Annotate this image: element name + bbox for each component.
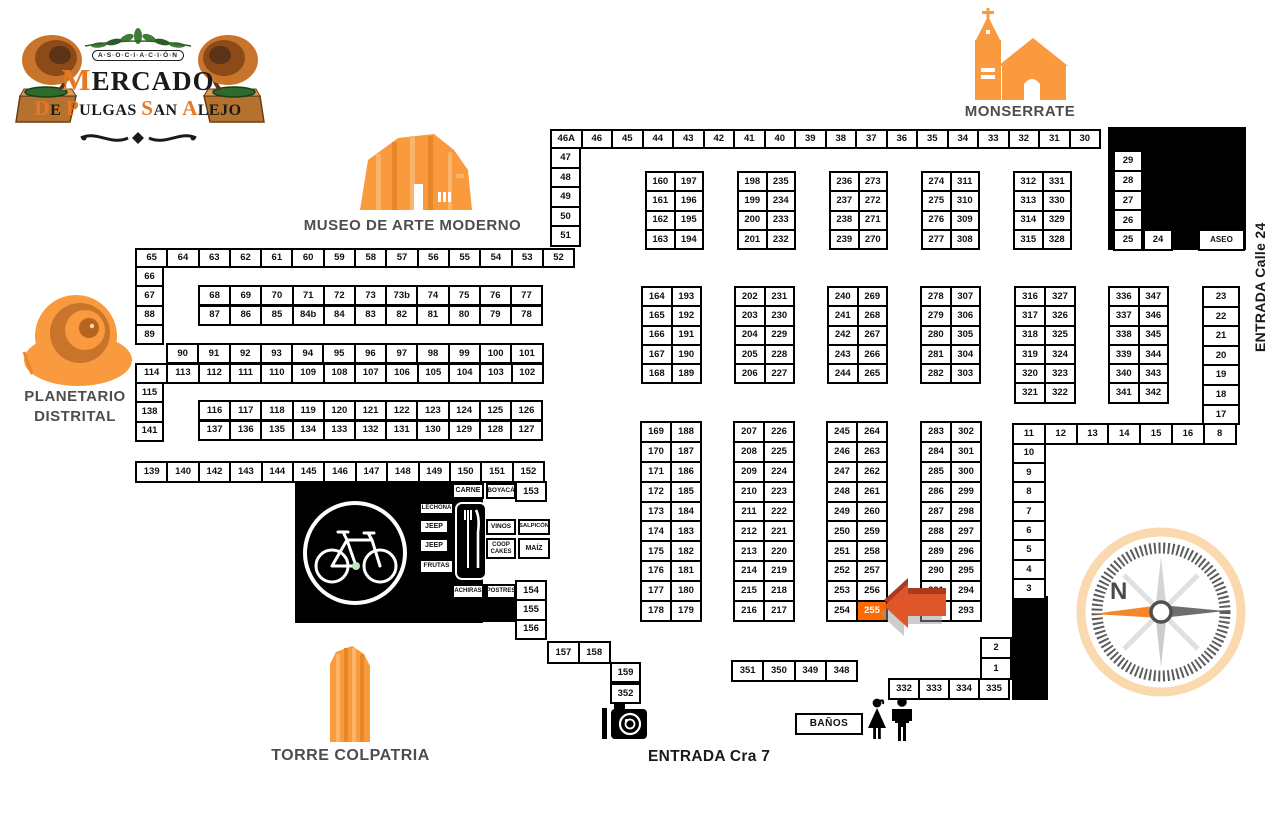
- stall-281: 281: [922, 346, 950, 363]
- stall-314: 314: [1015, 212, 1042, 229]
- stall-66: 66: [137, 268, 162, 285]
- stall-126: 126: [512, 402, 541, 419]
- man-restroom-icon: [890, 697, 914, 743]
- stall-308: 308: [952, 231, 979, 248]
- stall-305: 305: [952, 327, 980, 344]
- stall-341: 341: [1110, 384, 1138, 401]
- stall-7: 7: [1014, 503, 1044, 520]
- stall-169: 169: [642, 423, 670, 441]
- stall-50: 50: [552, 208, 579, 226]
- stall-16: 16: [1173, 425, 1203, 443]
- stall-174: 174: [642, 522, 670, 540]
- cell-159: 159: [610, 662, 641, 684]
- stall-339: 339: [1110, 346, 1138, 363]
- stall-227: 227: [766, 365, 794, 382]
- stall-39: 39: [796, 131, 825, 147]
- fork-knife-icon: [457, 504, 485, 578]
- stall-145: 145: [294, 463, 323, 481]
- block-164-189: 164193165192166191167190168189: [641, 286, 702, 384]
- stall-293: 293: [952, 602, 980, 620]
- col-66-89: 66678889: [135, 266, 164, 345]
- stall-351: 351: [733, 662, 762, 680]
- stall-153: 153: [517, 483, 545, 500]
- stall-215: 215: [735, 582, 763, 600]
- stall-57: 57: [387, 250, 416, 266]
- stall-213: 213: [735, 542, 763, 560]
- stall-326: 326: [1046, 307, 1074, 324]
- stall-236: 236: [831, 173, 858, 190]
- stall-277: 277: [923, 231, 950, 248]
- stall-17: 17: [1204, 406, 1238, 424]
- stall-84: 84: [325, 307, 354, 324]
- cell-153: 153: [515, 481, 547, 502]
- stall-104: 104: [450, 365, 479, 382]
- block-274-308: 274311275310276309277308: [921, 171, 980, 250]
- stall-88: 88: [137, 307, 162, 324]
- stall-262: 262: [858, 463, 886, 481]
- stall-23: 23: [1204, 288, 1238, 306]
- stall-346: 346: [1140, 307, 1168, 324]
- block-278-303: 278307279306280305281304282303: [920, 286, 981, 384]
- stall-316: 316: [1016, 288, 1044, 305]
- stall-338: 338: [1110, 327, 1138, 344]
- stall-30: 30: [1071, 131, 1100, 147]
- stall-78: 78: [512, 307, 541, 324]
- stall-35: 35: [918, 131, 947, 147]
- stall-140: 140: [168, 463, 197, 481]
- stall-74: 74: [418, 287, 447, 304]
- stall-44: 44: [644, 131, 673, 147]
- stall-75: 75: [450, 287, 479, 304]
- col-47-51: 4748495051: [550, 147, 581, 247]
- stall-197: 197: [676, 173, 703, 190]
- stall-315: 315: [1015, 231, 1042, 248]
- stall-331: 331: [1044, 173, 1071, 190]
- stall-132: 132: [356, 422, 385, 439]
- stall-335: 335: [980, 680, 1008, 699]
- stall-43: 43: [674, 131, 703, 147]
- food-label-salpic-n: SALPICÓN: [518, 519, 550, 535]
- row-116-126: 116117118119120121122123124125126: [198, 400, 543, 421]
- stall-216: 216: [735, 602, 763, 620]
- highlight-arrow-icon: [880, 574, 956, 636]
- stall-311: 311: [952, 173, 979, 190]
- stall-115: 115: [137, 384, 162, 401]
- stall-62: 62: [231, 250, 260, 266]
- block-207-217: 2072262082252092242102232112222122212132…: [733, 421, 795, 622]
- stall-37: 37: [857, 131, 886, 147]
- stall-205: 205: [736, 346, 764, 363]
- stall-49: 49: [552, 188, 579, 206]
- col-154-156: 154155156: [515, 580, 547, 640]
- stall-96: 96: [356, 345, 385, 362]
- stall-8: 8: [1014, 483, 1044, 500]
- food-label-achiras: ACHIRAS: [452, 584, 484, 599]
- food-label-jeep: JEEP: [419, 519, 449, 534]
- stall-222: 222: [765, 503, 793, 521]
- stall-170: 170: [642, 443, 670, 461]
- stall-309: 309: [952, 212, 979, 229]
- stall-303: 303: [952, 365, 980, 382]
- food-label-lechona: LECHONA: [419, 502, 454, 515]
- stall-237: 237: [831, 192, 858, 209]
- stall-175: 175: [642, 542, 670, 560]
- stall-92: 92: [231, 345, 260, 362]
- stall-15: 15: [1141, 425, 1171, 443]
- stall-202: 202: [736, 288, 764, 305]
- stall-152: 152: [514, 463, 543, 481]
- col-29-25: 2928272625: [1113, 150, 1143, 251]
- stall-207: 207: [735, 423, 763, 441]
- stall-65: 65: [137, 250, 166, 266]
- stall-146: 146: [325, 463, 354, 481]
- food-label-jeep: JEEP: [419, 538, 449, 553]
- stall-136: 136: [231, 422, 260, 439]
- block-245-255: 2452642462632472622482612492602502592512…: [826, 421, 888, 622]
- stall-264: 264: [858, 423, 886, 441]
- stall-188: 188: [672, 423, 700, 441]
- food-label-coop-cakes: COOP CAKES: [486, 538, 516, 559]
- stall-178: 178: [642, 602, 670, 620]
- stall-87: 87: [200, 307, 229, 324]
- stall-54: 54: [481, 250, 510, 266]
- food-label-postres: POSTRES: [486, 584, 516, 599]
- stall-121: 121: [356, 402, 385, 419]
- row-90-101: 90919293949596979899100101: [166, 343, 544, 364]
- stall-102: 102: [513, 365, 542, 382]
- stall-68: 68: [200, 287, 229, 304]
- stall-48: 48: [552, 169, 579, 187]
- stall-192: 192: [673, 307, 701, 324]
- laurel-icon: [83, 28, 193, 50]
- stall-120: 120: [325, 402, 354, 419]
- stall-320: 320: [1016, 365, 1044, 382]
- stall-249: 249: [828, 503, 856, 521]
- stall-235: 235: [768, 173, 795, 190]
- stall-1: 1: [982, 659, 1010, 677]
- stall-8: 8: [1205, 425, 1235, 443]
- stall-337: 337: [1110, 307, 1138, 324]
- stall-84b: 84b: [294, 307, 323, 324]
- stall-246: 246: [828, 443, 856, 461]
- stall-86: 86: [231, 307, 260, 324]
- stall-312: 312: [1015, 173, 1042, 190]
- stall-239: 239: [831, 231, 858, 248]
- stall-168: 168: [643, 365, 671, 382]
- block-160-194: 160197161196162195163194: [645, 171, 704, 250]
- stall-29: 29: [1115, 152, 1141, 170]
- stall-116: 116: [200, 402, 229, 419]
- black-zone-bottom-right: [1012, 596, 1048, 700]
- stall-27: 27: [1115, 192, 1141, 210]
- block-240-265: 240269241268242267243266244265: [827, 286, 888, 384]
- food-label-boyac-: BOYACÁ: [486, 483, 516, 499]
- stall-93: 93: [262, 345, 291, 362]
- svg-text:N: N: [1110, 578, 1127, 605]
- stall-189: 189: [673, 365, 701, 382]
- stall-18: 18: [1204, 386, 1238, 404]
- stall-274: 274: [923, 173, 950, 190]
- block-316-322: 316327317326318325319324320323321322: [1014, 286, 1076, 404]
- stall-231: 231: [766, 288, 794, 305]
- stall-248: 248: [828, 483, 856, 501]
- stall-317: 317: [1016, 307, 1044, 324]
- stall-208: 208: [735, 443, 763, 461]
- stall-347: 347: [1140, 288, 1168, 305]
- stall-218: 218: [765, 582, 793, 600]
- block-336-342: 336347337346338345339344340343341342: [1108, 286, 1169, 404]
- stall-98: 98: [418, 345, 447, 362]
- stall-82: 82: [387, 307, 416, 324]
- food-label-ma-z: MAÍZ: [518, 538, 550, 559]
- stall-142: 142: [200, 463, 229, 481]
- stall-199: 199: [739, 192, 766, 209]
- stall-344: 344: [1140, 346, 1168, 363]
- logo-subtitle: DE PULGAS SAN ALEJO: [8, 96, 268, 121]
- stall-55: 55: [450, 250, 479, 266]
- stall-47: 47: [552, 149, 579, 167]
- stall-111: 111: [231, 365, 260, 382]
- stall-266: 266: [859, 346, 887, 363]
- stall-243: 243: [829, 346, 857, 363]
- stall-209: 209: [735, 463, 763, 481]
- logo-asociacion: A·S·O·C·I·A·C·I·Ó·N: [92, 50, 184, 61]
- food-label-vinos: VINOS: [486, 519, 516, 535]
- stall-177: 177: [642, 582, 670, 600]
- block-169-179: 1691881701871711861721851731841741831751…: [640, 421, 702, 622]
- stall-6: 6: [1014, 522, 1044, 539]
- stall-181: 181: [672, 562, 700, 580]
- stall-270: 270: [860, 231, 887, 248]
- stall-228: 228: [766, 346, 794, 363]
- stall-139: 139: [137, 463, 166, 481]
- row-65-52: 6564636261605958575655545352: [135, 248, 575, 268]
- stall-107: 107: [356, 365, 385, 382]
- banos-box: BAÑOS: [795, 713, 863, 735]
- stall-343: 343: [1140, 365, 1168, 382]
- stall-288: 288: [922, 522, 950, 540]
- stall-109: 109: [293, 365, 322, 382]
- stall-94: 94: [293, 345, 322, 362]
- stall-34: 34: [949, 131, 978, 147]
- logo: A·S·O·C·I·A·C·I·Ó·N MERCADO DE PULGAS SA…: [8, 10, 268, 160]
- stall-330: 330: [1044, 192, 1071, 209]
- planetario-label-line2: DISTRITAL: [5, 408, 145, 425]
- stall-40: 40: [766, 131, 795, 147]
- stall-271: 271: [860, 212, 887, 229]
- col-115-141: 115138141: [135, 382, 164, 442]
- row-68-77: 68697071727373b74757677: [198, 285, 543, 306]
- stall-5: 5: [1014, 541, 1044, 558]
- stall-20: 20: [1204, 347, 1238, 365]
- row-114-102: 114113112111110109108107106105104103102: [135, 363, 544, 384]
- stall-258: 258: [858, 542, 886, 560]
- stall-247: 247: [828, 463, 856, 481]
- stall-134: 134: [294, 422, 323, 439]
- stall-141: 141: [137, 423, 162, 440]
- compass-icon: N: [1072, 523, 1250, 701]
- stall-85: 85: [262, 307, 291, 324]
- stall-11: 11: [1014, 425, 1044, 443]
- stall-3: 3: [1014, 580, 1044, 597]
- stall-297: 297: [952, 522, 980, 540]
- stall-334: 334: [950, 680, 978, 699]
- stall-211: 211: [735, 503, 763, 521]
- row-11-8: 1112131415168: [1012, 423, 1237, 445]
- stall-278: 278: [922, 288, 950, 305]
- stall-114: 114: [137, 365, 166, 382]
- monserrate-label: MONSERRATE: [945, 103, 1095, 120]
- stall-77: 77: [512, 287, 541, 304]
- stall-38: 38: [827, 131, 856, 147]
- stall-119: 119: [294, 402, 323, 419]
- stall-4: 4: [1014, 561, 1044, 578]
- stall-206: 206: [736, 365, 764, 382]
- stall-155: 155: [517, 601, 545, 618]
- stall-261: 261: [858, 483, 886, 501]
- stall-113: 113: [168, 365, 197, 382]
- torre-colpatria-label: TORRE COLPATRIA: [268, 747, 433, 765]
- stall-300: 300: [952, 463, 980, 481]
- stall-127: 127: [512, 422, 541, 439]
- stall-167: 167: [643, 346, 671, 363]
- stall-41: 41: [735, 131, 764, 147]
- stall-159: 159: [612, 664, 639, 682]
- stall-323: 323: [1046, 365, 1074, 382]
- stall-349: 349: [796, 662, 825, 680]
- cutlery-box: [455, 502, 487, 580]
- stall-103: 103: [481, 365, 510, 382]
- planetario-icon: [18, 292, 140, 388]
- stall-99: 99: [450, 345, 479, 362]
- stall-106: 106: [387, 365, 416, 382]
- block-312-328: 312331313330314329315328: [1013, 171, 1072, 250]
- stall-299: 299: [952, 483, 980, 501]
- stall-25: 25: [1115, 231, 1141, 249]
- stall-21: 21: [1204, 327, 1238, 345]
- museo-arte-moderno-label: MUSEO DE ARTE MODERNO: [295, 217, 530, 234]
- stall-214: 214: [735, 562, 763, 580]
- stall-9: 9: [1014, 464, 1044, 481]
- stall-173: 173: [642, 503, 670, 521]
- stall-161: 161: [647, 192, 674, 209]
- stall-105: 105: [419, 365, 448, 382]
- cell-352: 352: [610, 683, 641, 704]
- stall-58: 58: [356, 250, 385, 266]
- stall-219: 219: [765, 562, 793, 580]
- stall-310: 310: [952, 192, 979, 209]
- stall-61: 61: [262, 250, 291, 266]
- stall-284: 284: [922, 443, 950, 461]
- row-87-78: 87868584b84838281807978: [198, 305, 543, 326]
- flourish-icon: [76, 128, 201, 148]
- stall-26: 26: [1115, 211, 1141, 229]
- bicycle-icon: [302, 500, 408, 606]
- planetario-label-line1: PLANETARIO: [5, 388, 145, 405]
- stall-268: 268: [859, 307, 887, 324]
- stall-165: 165: [643, 307, 671, 324]
- stall-254: 254: [828, 602, 856, 620]
- stall-238: 238: [831, 212, 858, 229]
- stall-10: 10: [1014, 445, 1044, 462]
- row-332-335: 332333334335: [888, 678, 1010, 701]
- stall-348: 348: [827, 662, 856, 680]
- stall-298: 298: [952, 503, 980, 521]
- stall-190: 190: [673, 346, 701, 363]
- stall-137: 137: [200, 422, 229, 439]
- stall-182: 182: [672, 542, 700, 560]
- woman-restroom-icon: [866, 698, 888, 742]
- stall-90: 90: [168, 345, 197, 362]
- stall-322: 322: [1046, 384, 1074, 401]
- monserrate-icon: [950, 8, 1090, 100]
- stall-180: 180: [672, 582, 700, 600]
- stall-195: 195: [676, 212, 703, 229]
- stall-295: 295: [952, 562, 980, 580]
- stall-223: 223: [765, 483, 793, 501]
- stall-240: 240: [829, 288, 857, 305]
- stall-81: 81: [418, 307, 447, 324]
- stall-267: 267: [859, 327, 887, 344]
- stall-124: 124: [450, 402, 479, 419]
- stall-164: 164: [643, 288, 671, 305]
- stall-117: 117: [231, 402, 260, 419]
- stall-198: 198: [739, 173, 766, 190]
- stall-36: 36: [888, 131, 917, 147]
- stall-163: 163: [647, 231, 674, 248]
- stall-342: 342: [1140, 384, 1168, 401]
- logo-title: MERCADO: [8, 62, 268, 98]
- stall-162: 162: [647, 212, 674, 229]
- col-2-1: 21: [980, 637, 1012, 680]
- stall-289: 289: [922, 542, 950, 560]
- stall-108: 108: [325, 365, 354, 382]
- stall-269: 269: [859, 288, 887, 305]
- stall-95: 95: [324, 345, 353, 362]
- stall-158: 158: [580, 643, 609, 662]
- stall-52: 52: [544, 250, 573, 266]
- stall-73b: 73b: [387, 287, 416, 304]
- stall-265: 265: [859, 365, 887, 382]
- stall-129: 129: [450, 422, 479, 439]
- stall-56: 56: [419, 250, 448, 266]
- stall-ASEO: ASEO: [1200, 231, 1243, 249]
- stall-100: 100: [481, 345, 510, 362]
- stall-352: 352: [612, 685, 639, 702]
- stall-313: 313: [1015, 192, 1042, 209]
- stall-280: 280: [922, 327, 950, 344]
- stall-345: 345: [1140, 327, 1168, 344]
- stall-122: 122: [387, 402, 416, 419]
- stall-217: 217: [765, 602, 793, 620]
- stall-67: 67: [137, 287, 162, 304]
- stall-336: 336: [1110, 288, 1138, 305]
- stall-71: 71: [294, 287, 323, 304]
- stall-304: 304: [952, 346, 980, 363]
- stall-350: 350: [764, 662, 793, 680]
- stall-244: 244: [829, 365, 857, 382]
- stall-19: 19: [1204, 366, 1238, 384]
- food-label-carne: CARNE: [452, 483, 484, 499]
- stall-89: 89: [137, 326, 162, 343]
- stall-191: 191: [673, 327, 701, 344]
- stall-194: 194: [676, 231, 703, 248]
- stall-318: 318: [1016, 327, 1044, 344]
- entrada-calle24-label: ENTRADA Calle 24: [1252, 162, 1268, 352]
- stall-327: 327: [1046, 288, 1074, 305]
- stall-301: 301: [952, 443, 980, 461]
- stall-138: 138: [137, 403, 162, 420]
